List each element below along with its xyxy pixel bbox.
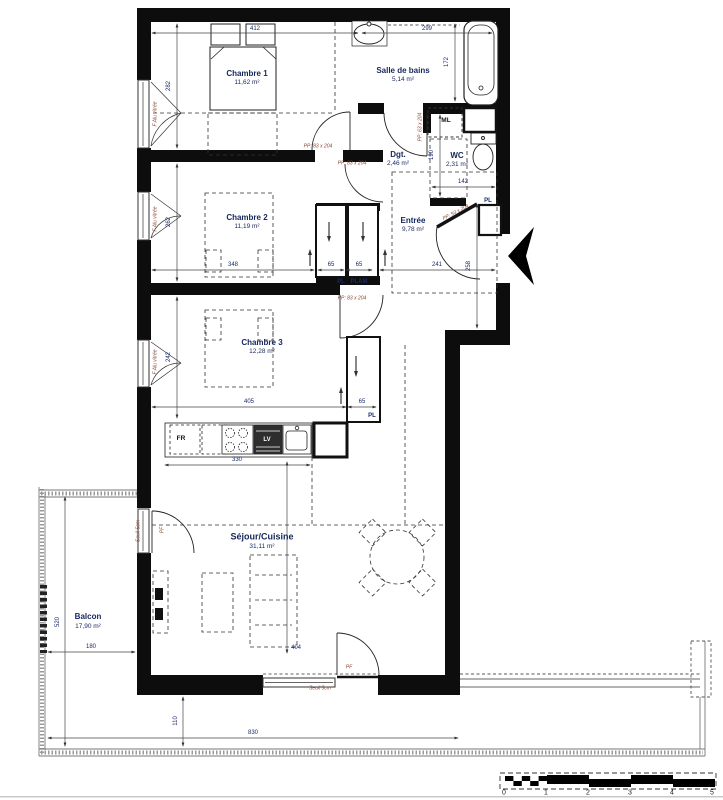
scale-tick-4: 4 [670, 790, 674, 797]
room-area-sejour-cuisine: 31,11 m² [249, 544, 274, 551]
room-area-chambre1: 11,62 m² [234, 80, 259, 87]
door-swings [152, 112, 480, 675]
room-area-salle-de-bains: 5,14 m² [392, 77, 414, 84]
room-area-balcon: 17,90 m² [75, 624, 101, 631]
window-label-chambre3: F Alu vitrée [154, 349, 159, 374]
room-label-wc: WC [450, 152, 463, 160]
room-area-wc: 2,31 m² [446, 162, 468, 169]
washing-machine-label: ML [441, 118, 450, 125]
windows [138, 80, 700, 687]
french-door-label-bottom: PF [346, 666, 352, 671]
bed [210, 24, 276, 110]
dim-282: 282 [166, 81, 172, 91]
fridge-label: FR [177, 436, 186, 443]
window-label-chambre1: F Alu vitrée [154, 101, 159, 126]
dim-262: 262 [166, 217, 172, 227]
scale-tick-2: 2 [586, 790, 590, 797]
closet-pl-ch3-label: PL [368, 413, 376, 419]
dim-830: 830 [248, 730, 258, 736]
threshold-label-bottom: Seuil 5cm [309, 687, 331, 692]
scale-tick-1: 1 [544, 790, 548, 797]
walls [137, 8, 510, 695]
closets [316, 205, 501, 422]
closet-pl-entree-label: PL [484, 198, 492, 204]
dim-110: 110 [173, 716, 179, 726]
dim-180: 180 [86, 644, 96, 650]
room-area-entree: 9,78 m² [402, 227, 424, 234]
dim-190: 190 [429, 150, 435, 160]
dim-299: 299 [422, 26, 432, 32]
toilet [471, 133, 496, 170]
dim-330: 330 [232, 457, 242, 463]
room-label-balcon: Balcon [75, 613, 102, 621]
room-label-chambre2: Chambre 2 [226, 214, 267, 222]
closet-pl-label: PL [337, 279, 345, 285]
room-area-degagement: 2,46 m² [387, 161, 409, 168]
threshold-label-balcony-door: Seuil 5cm [137, 520, 142, 542]
room-label-chambre1: Chambre 1 [226, 70, 267, 78]
dim-241: 241 [432, 262, 442, 268]
scale-tick-0: 0 [502, 790, 506, 797]
dim-404: 404 [291, 645, 301, 651]
window-swings [151, 82, 181, 385]
dim-520: 520 [55, 617, 61, 627]
dim-412: 412 [250, 26, 260, 32]
page-footer-line [0, 796, 723, 798]
wc-handbasin [464, 108, 496, 132]
washbasin [352, 21, 460, 46]
room-label-entree: Entrée [401, 217, 426, 225]
french-door-label-balcony: PF [161, 527, 166, 533]
room-label-chambre3: Chambre 3 [241, 339, 282, 347]
dim-242: 242 [166, 352, 172, 362]
floor-plan: Chambre 1 11,62 m² Salle de bains 5,14 m… [0, 0, 723, 800]
dim-142: 142 [458, 179, 468, 185]
door-size-chambre1: PP: 83 x 204 [304, 145, 333, 150]
scale-bar [500, 773, 716, 789]
dim-348: 348 [228, 262, 238, 268]
scale-tick-5: 5 [710, 790, 714, 797]
room-label-degagement: Dgt. [390, 151, 406, 159]
dim-258: 258 [466, 261, 472, 271]
closet-plam-label: PLAM [351, 279, 368, 285]
door-size-chambre3: PP: 83 x 204 [338, 297, 367, 302]
door-size-wc: PP: 63 x 204 [419, 113, 424, 142]
dim-65c: 65 [359, 399, 366, 405]
kitchen [165, 423, 347, 457]
scale-tick-3: 3 [628, 790, 632, 797]
dim-405: 405 [244, 399, 254, 405]
room-area-chambre2: 11,19 m² [234, 224, 259, 231]
room-area-chambre3: 12,28 m² [249, 349, 275, 356]
dim-172: 172 [444, 57, 450, 67]
window-label-chambre2: F Alu vitrée [154, 206, 159, 231]
bathtub [464, 21, 498, 105]
dim-65a: 65 [328, 262, 335, 268]
dishwasher-label: LV [263, 437, 270, 443]
tv-unit [155, 588, 163, 620]
room-label-sejour-cuisine: Séjour/Cuisine [230, 533, 293, 542]
room-label-salle-de-bains: Salle de bains [376, 67, 429, 75]
door-size-degagement: PP: 83 x 204 [338, 162, 367, 167]
dim-65b: 65 [356, 262, 363, 268]
entrance-arrow [508, 227, 534, 285]
